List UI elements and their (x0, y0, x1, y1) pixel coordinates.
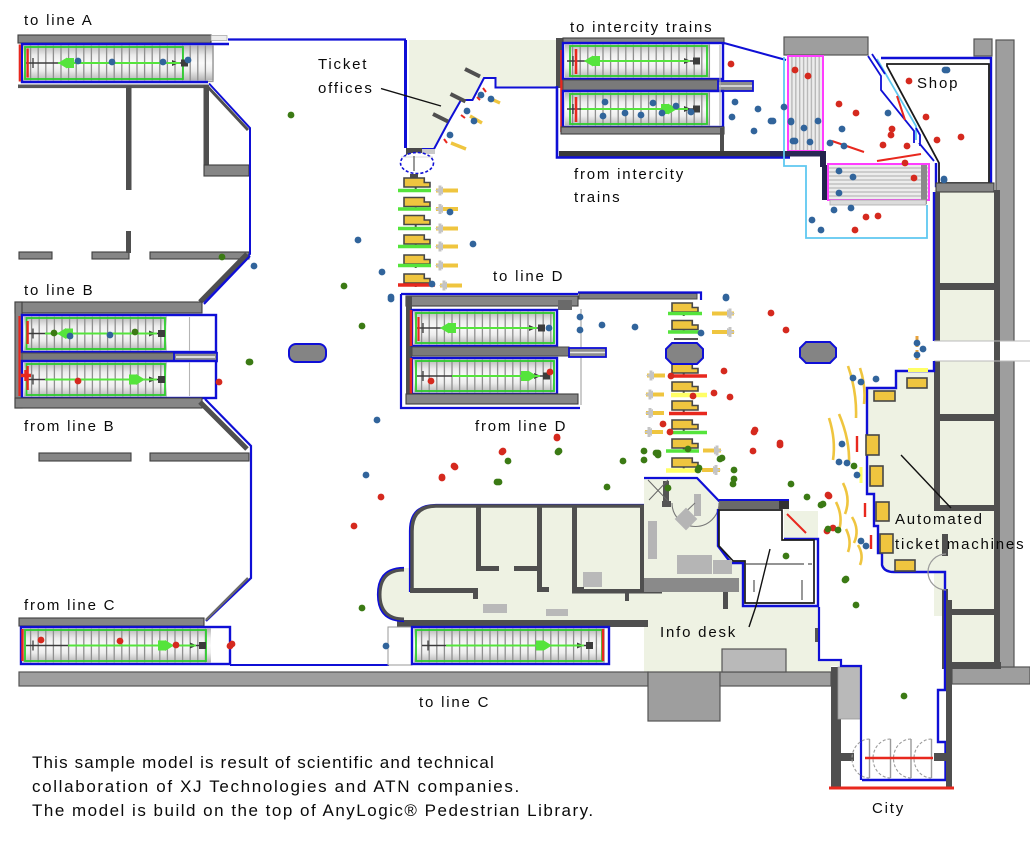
svg-text:Ticket: Ticket (318, 56, 368, 73)
svg-text:Shop: Shop (917, 75, 959, 92)
svg-text:to intercity trains: to intercity trains (570, 19, 713, 36)
svg-text:from line C: from line C (24, 597, 116, 614)
svg-text:City: City (872, 800, 905, 817)
svg-text:offices: offices (318, 80, 374, 97)
svg-text:from intercity: from intercity (574, 166, 685, 183)
svg-text:The model is build on the top: The model is build on the top of AnyLogi… (32, 801, 595, 820)
svg-text:to line A: to line A (24, 12, 94, 29)
svg-text:trains: trains (574, 189, 621, 206)
svg-text:from line D: from line D (475, 418, 567, 435)
svg-text:to line C: to line C (419, 694, 490, 711)
svg-text:collaboration of XJ Technologi: collaboration of XJ Technologies and ATN… (32, 777, 521, 796)
svg-text:Automated: Automated (895, 511, 984, 528)
svg-text:This sample model is result of: This sample model is result of scientifi… (32, 753, 495, 772)
svg-text:Info desk: Info desk (660, 624, 737, 641)
svg-text:to line B: to line B (24, 282, 94, 299)
svg-text:ticket machines: ticket machines (895, 536, 1025, 553)
svg-text:from line B: from line B (24, 418, 116, 435)
svg-text:to line D: to line D (493, 268, 564, 285)
